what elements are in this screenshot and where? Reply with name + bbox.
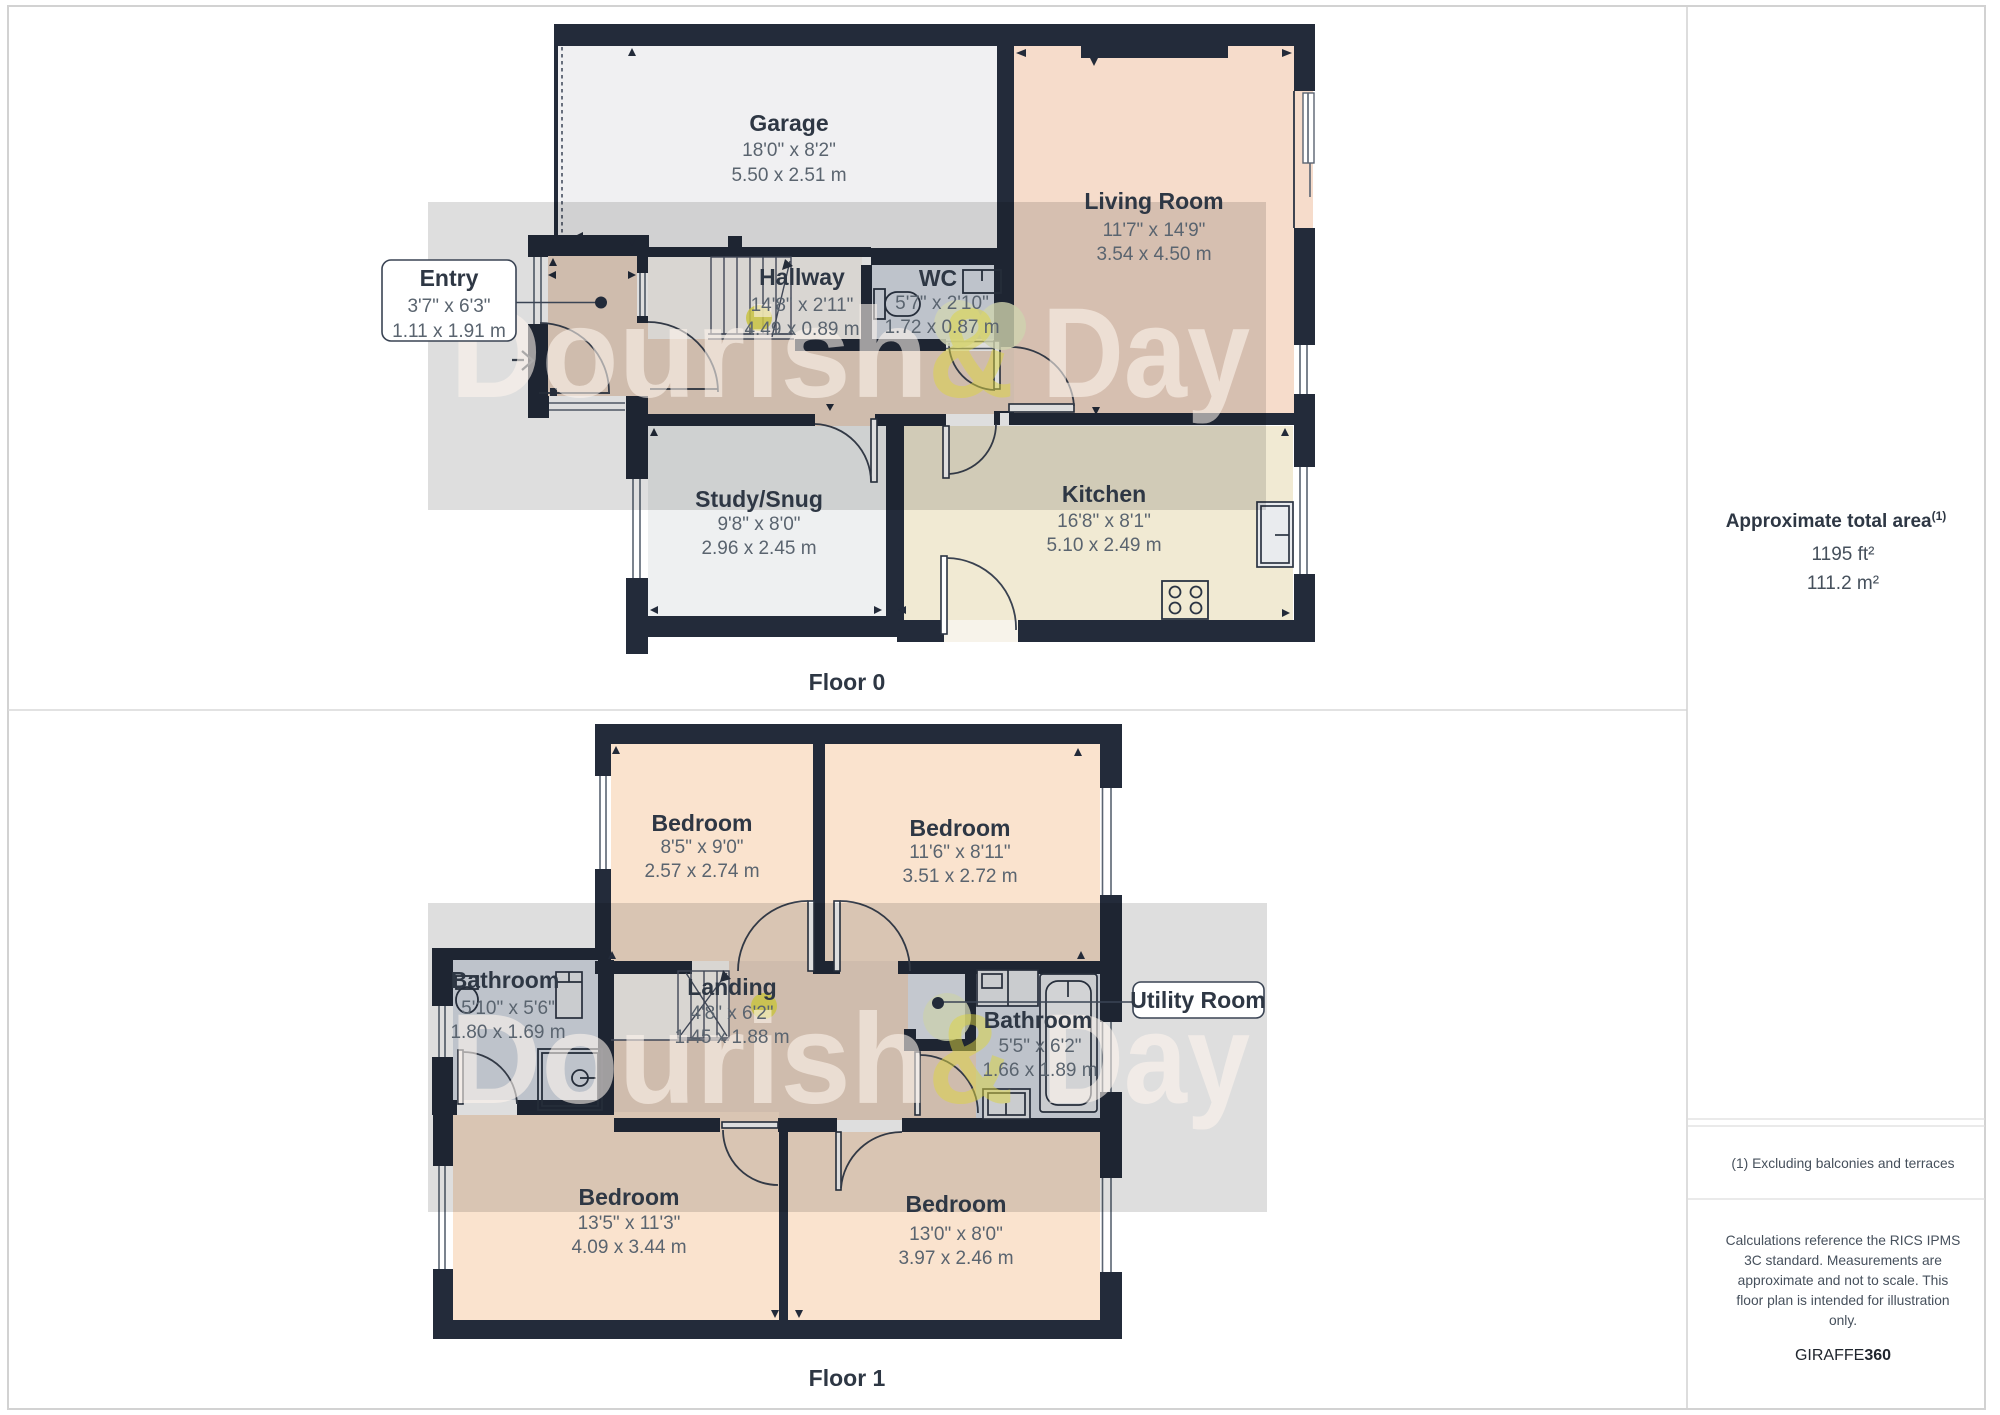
svg-text:3.97 x 2.46 m: 3.97 x 2.46 m (898, 1248, 1013, 1269)
svg-text:Utility Room: Utility Room (1130, 987, 1265, 1013)
svg-text:approximate and not to scale.: approximate and not to scale. This (1738, 1273, 1949, 1288)
svg-text:8'5" x 9'0": 8'5" x 9'0" (660, 837, 743, 858)
svg-text:4.49 x 0.89 m: 4.49 x 0.89 m (744, 319, 859, 340)
svg-text:5'7" x 2'10": 5'7" x 2'10" (895, 293, 989, 314)
svg-text:13'0" x 8'0": 13'0" x 8'0" (909, 1224, 1003, 1245)
svg-text:1.11 x 1.91 m: 1.11 x 1.91 m (392, 321, 506, 342)
svg-text:Day: Day (1042, 282, 1250, 425)
svg-text:3'7" x 6'3": 3'7" x 6'3" (407, 296, 490, 317)
svg-text:Kitchen: Kitchen (1062, 481, 1146, 507)
svg-text:3.51 x 2.72 m: 3.51 x 2.72 m (902, 866, 1017, 887)
svg-text:2.96 x 2.45 m: 2.96 x 2.45 m (701, 538, 816, 559)
svg-text:Bathroom: Bathroom (984, 1007, 1093, 1033)
svg-text:Bedroom: Bedroom (906, 1191, 1007, 1217)
svg-text:13'5" x 11'3": 13'5" x 11'3" (578, 1213, 681, 1234)
svg-text:3.54 x 4.50 m: 3.54 x 4.50 m (1096, 244, 1211, 265)
svg-text:Hallway: Hallway (759, 264, 845, 290)
svg-text:WC: WC (919, 265, 957, 291)
svg-text:5.50 x 2.51 m: 5.50 x 2.51 m (731, 165, 846, 186)
svg-text:Garage: Garage (749, 110, 828, 136)
svg-text:11'7" x 14'9": 11'7" x 14'9" (1103, 220, 1206, 241)
svg-text:1.45 x 1.88 m: 1.45 x 1.88 m (674, 1027, 789, 1048)
svg-text:Bedroom: Bedroom (652, 810, 753, 836)
svg-text:5.10 x 2.49 m: 5.10 x 2.49 m (1046, 535, 1161, 556)
svg-text:1.66 x 1.89 m: 1.66 x 1.89 m (982, 1060, 1097, 1081)
svg-text:Entry: Entry (420, 265, 479, 291)
svg-text:Bathroom: Bathroom (451, 967, 560, 993)
svg-text:2.57 x 2.74 m: 2.57 x 2.74 m (644, 861, 759, 882)
svg-text:Study/Snug: Study/Snug (695, 486, 823, 512)
svg-text:Living Room: Living Room (1084, 188, 1223, 214)
svg-text:Landing: Landing (687, 974, 776, 1000)
svg-text:1.80 x 1.69 m: 1.80 x 1.69 m (450, 1022, 565, 1043)
svg-text:Approximate total area(1): Approximate total area(1) (1726, 509, 1947, 532)
svg-text:GIRAFFE360: GIRAFFE360 (1795, 1347, 1891, 1364)
svg-text:1195 ft²: 1195 ft² (1811, 544, 1874, 565)
svg-text:floor plan is intended for ill: floor plan is intended for illustration (1736, 1293, 1949, 1308)
svg-text:Calculations reference the RIC: Calculations reference the RICS IPMS (1726, 1233, 1961, 1248)
svg-text:16'8" x 8'1": 16'8" x 8'1" (1057, 511, 1151, 532)
svg-text:only.: only. (1829, 1313, 1857, 1328)
svg-text:Floor 0: Floor 0 (809, 669, 886, 695)
svg-text:111.2 m²: 111.2 m² (1807, 573, 1879, 594)
svg-text:Bedroom: Bedroom (579, 1184, 680, 1210)
svg-text:Bedroom: Bedroom (910, 815, 1011, 841)
svg-text:3C standard. Measurements are: 3C standard. Measurements are (1744, 1253, 1942, 1268)
svg-text:9'8" x 8'0": 9'8" x 8'0" (717, 514, 800, 535)
svg-text:Dourish: Dourish (450, 282, 928, 425)
svg-text:18'0" x 8'2": 18'0" x 8'2" (742, 140, 836, 161)
svg-text:11'6" x 8'11": 11'6" x 8'11" (909, 842, 1010, 863)
svg-text:14'8" x 2'11": 14'8" x 2'11" (751, 295, 854, 316)
svg-text:(1) Excluding balconies and te: (1) Excluding balconies and terraces (1731, 1156, 1954, 1171)
svg-text:4'8" x 6'2": 4'8" x 6'2" (690, 1003, 773, 1024)
svg-text:1.72 x 0.87 m: 1.72 x 0.87 m (884, 317, 999, 338)
svg-text:4.09 x 3.44 m: 4.09 x 3.44 m (571, 1237, 686, 1258)
svg-text:5'5" x 6'2": 5'5" x 6'2" (998, 1036, 1081, 1057)
svg-text:Floor 1: Floor 1 (809, 1365, 886, 1391)
svg-text:5'10" x 5'6": 5'10" x 5'6" (461, 998, 555, 1019)
